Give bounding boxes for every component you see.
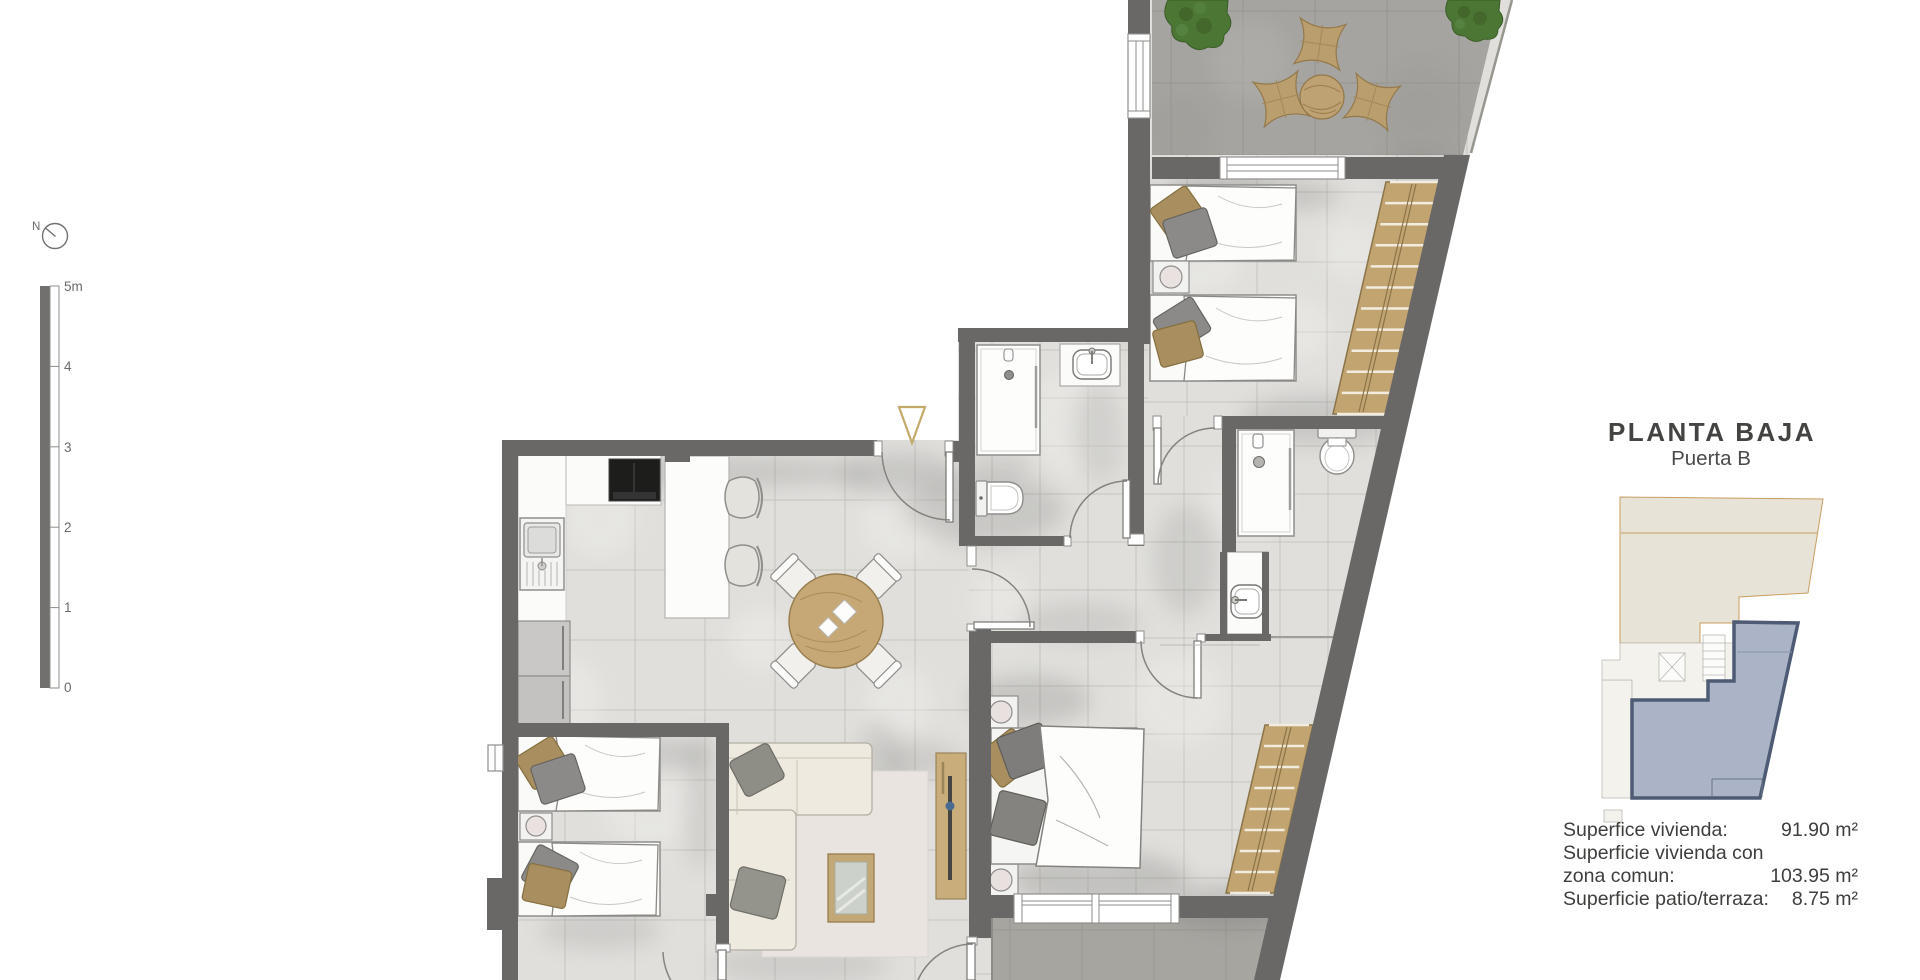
svg-text:Superficie vivienda con: Superficie vivienda con	[1563, 842, 1764, 864]
svg-text:Superficie patio/terraza:: Superficie patio/terraza:	[1563, 888, 1769, 910]
svg-text:8.75 m²: 8.75 m²	[1792, 888, 1859, 910]
svg-text:3: 3	[64, 440, 72, 455]
svg-text:4: 4	[64, 359, 72, 374]
svg-text:5m: 5m	[64, 279, 83, 294]
svg-text:PLANTA BAJA: PLANTA BAJA	[1608, 417, 1816, 447]
svg-text:0: 0	[64, 680, 72, 695]
svg-text:N: N	[32, 221, 40, 233]
svg-text:91.90 m²: 91.90 m²	[1781, 819, 1858, 841]
svg-text:Puerta B: Puerta B	[1671, 447, 1751, 470]
svg-text:Superfice vivienda:: Superfice vivienda:	[1563, 819, 1728, 841]
svg-text:1: 1	[64, 600, 72, 615]
svg-text:zona comun:: zona comun:	[1563, 865, 1675, 887]
svg-text:103.95 m²: 103.95 m²	[1770, 865, 1858, 887]
svg-text:2: 2	[64, 520, 72, 535]
